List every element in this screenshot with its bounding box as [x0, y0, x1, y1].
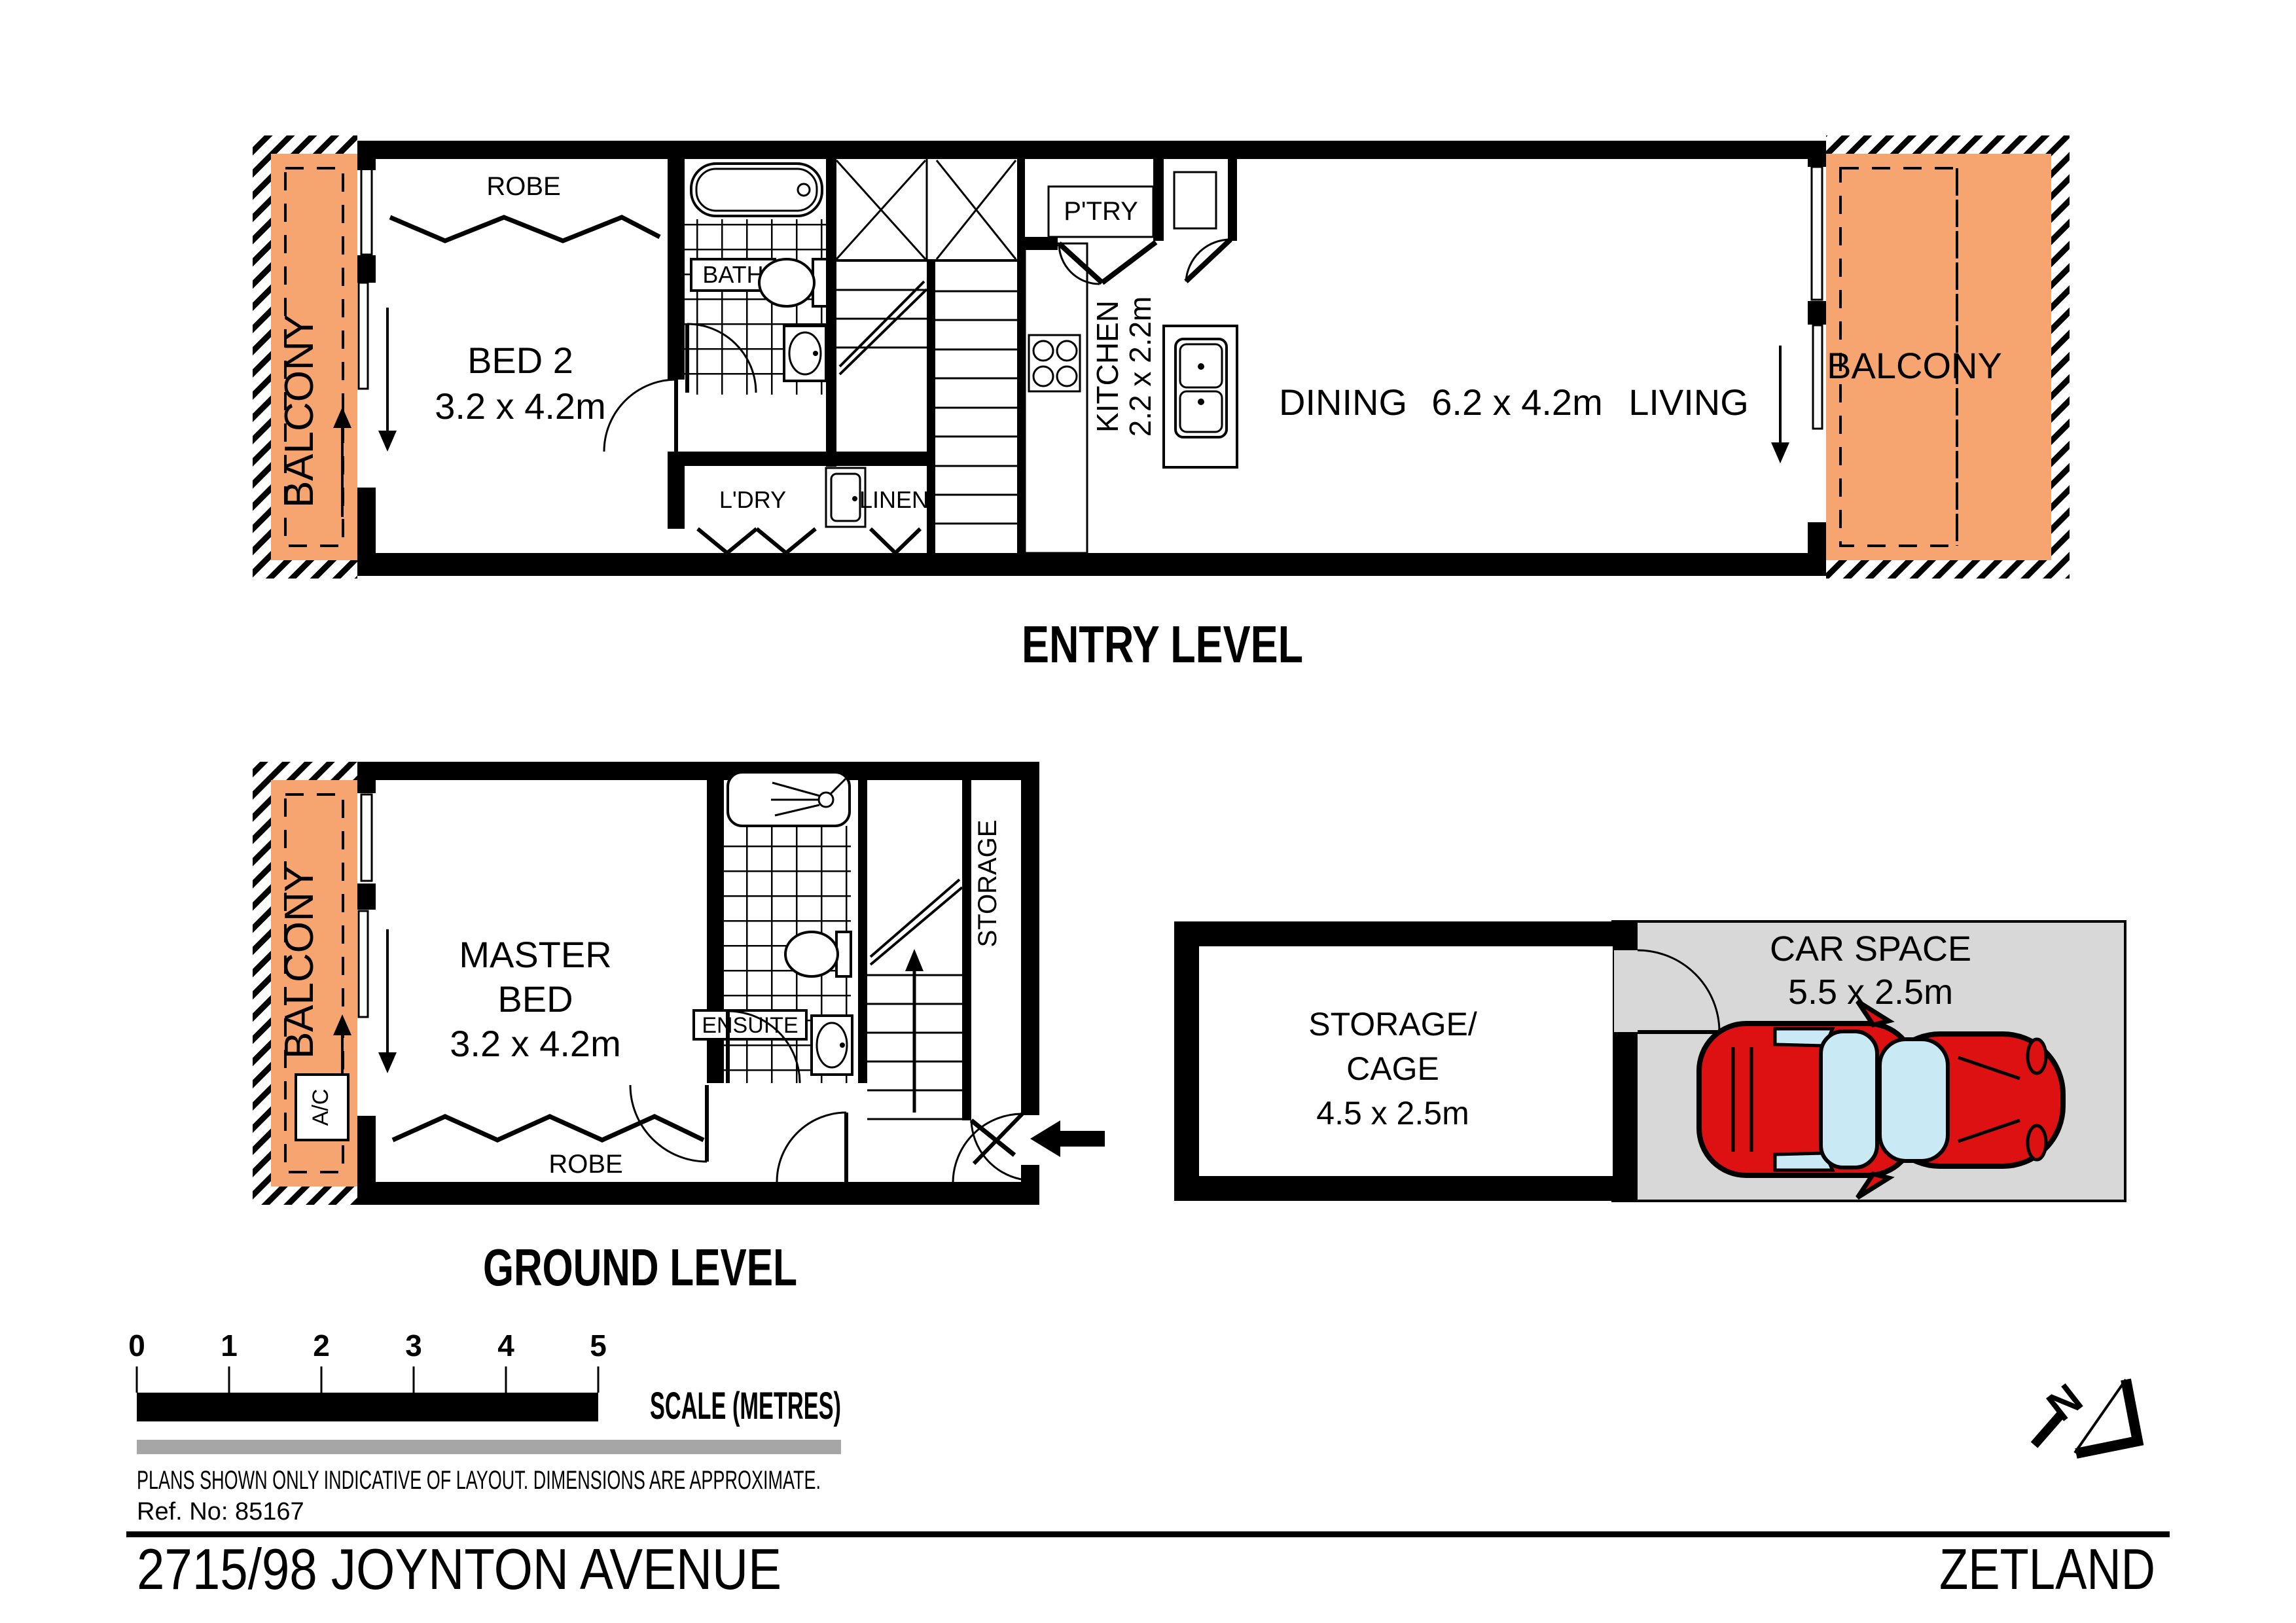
door-swing-arrow-head: [378, 1052, 397, 1073]
living-dimension: 6.2 x 4.2m: [1431, 382, 1602, 423]
wall: [685, 452, 927, 466]
wall: [357, 762, 376, 793]
suburb-text: ZETLAND: [1939, 1537, 2155, 1601]
scale-tick-label: 3: [405, 1329, 422, 1363]
stair-handrail: [840, 281, 924, 366]
stair-handrail: [870, 887, 962, 965]
living-label: LIVING: [1628, 382, 1749, 423]
wall: [357, 883, 376, 910]
bathroom: BATH: [685, 164, 829, 395]
kitchen-counter: [1025, 243, 1087, 553]
door-swing-arrow-head: [378, 431, 397, 452]
disclaimer-text: PLANS SHOWN ONLY INDICATIVE OF LAYOUT. D…: [137, 1466, 821, 1495]
kitchen-label: KITCHEN: [1090, 300, 1124, 433]
wall: [1808, 141, 1826, 167]
sliding-door-icon: [359, 911, 368, 1017]
robe-label: ROBE: [548, 1150, 622, 1179]
wall: [668, 159, 685, 380]
wall: [858, 762, 867, 1083]
bath-label: BATH: [702, 261, 763, 288]
kitchen-dimension: 2.2 x 2.2m: [1123, 296, 1157, 437]
scale-bar-rect: [137, 1393, 598, 1421]
dining-label: DINING: [1279, 382, 1407, 423]
storage-door-leaf: [971, 1120, 1014, 1155]
basin-counter-icon: [784, 326, 826, 381]
linen-label: LINEN: [859, 486, 929, 513]
basin-tap-dot: [840, 1043, 845, 1048]
window-icon: [1812, 167, 1822, 300]
cooktop-burner: [1057, 341, 1077, 361]
ground-stairs: [858, 762, 971, 1120]
entry-door-leaf: [974, 1114, 1022, 1164]
wall: [357, 141, 1826, 159]
scale-tick-label: 0: [128, 1329, 145, 1363]
master-dimension: 3.2 x 4.2m: [450, 1023, 620, 1064]
address-text: 2715/98 JOYNTON AVENUE: [137, 1537, 781, 1601]
stair-up-arrow-head: [905, 949, 924, 971]
toilet-icon: [759, 259, 814, 306]
north-arrow-icon: N: [2034, 1374, 2138, 1454]
wall: [357, 255, 376, 283]
window-icon: [361, 169, 372, 255]
entry-level-title: ENTRY LEVEL: [1022, 615, 1303, 673]
robe-zigzag-icon: [393, 1116, 704, 1140]
stair-handrail: [870, 880, 960, 957]
sink-drain-dot: [1198, 363, 1204, 370]
bed2-dimension: 3.2 x 4.2m: [435, 385, 605, 427]
scale-tick-label: 5: [590, 1329, 607, 1363]
bathtub-icon: [691, 164, 822, 216]
bifold-door-icon: [698, 529, 757, 553]
bed2-room: ROBE BED 2 3.2 x 4.2m: [390, 172, 660, 427]
storage-cage-dimension: 4.5 x 2.5m: [1316, 1095, 1469, 1132]
stair-handrail: [840, 289, 927, 374]
ensuite-label: ENSUITE: [702, 1013, 798, 1038]
wall: [1174, 921, 1638, 946]
balcony-hatch-border: [1826, 135, 2070, 154]
cooktop-burner: [1033, 341, 1053, 361]
scale-tick-label: 1: [221, 1329, 238, 1363]
storage-cage-label-line1: STORAGE/: [1308, 1006, 1477, 1043]
wall: [357, 488, 376, 553]
wall: [357, 141, 376, 170]
sink-drain-dot: [1198, 399, 1204, 405]
balcony-hatch-border: [2051, 135, 2070, 579]
north-arrow-thick-edge: [2076, 1380, 2138, 1454]
door-swing-arrow-head: [1771, 442, 1789, 463]
carspace-area: CAR SPACE 5.5 x 2.5m STORAGE/ CAGE 4.5 x…: [1174, 921, 2125, 1201]
pantry-door-leaf: [1059, 243, 1102, 283]
scale-tick-label: 2: [313, 1329, 330, 1363]
balcony-label: BALCONY: [277, 865, 322, 1059]
car-headlight: [2028, 1039, 2046, 1073]
wall: [1021, 1165, 1039, 1182]
toilet-icon: [785, 932, 838, 976]
scale-grey-bar: [137, 1440, 841, 1454]
car-rear-window: [1821, 1031, 1877, 1168]
floorplan-page: BALCONY ROBE BED 2 3.2 x 4.2m: [0, 0, 2296, 1623]
wall: [1808, 301, 1826, 325]
pantry-label: P'TRY: [1064, 197, 1138, 226]
bifold-door-icon: [870, 529, 920, 553]
ground-level-title: GROUND LEVEL: [483, 1238, 797, 1296]
wall: [357, 1116, 376, 1205]
laundry-label: L'DRY: [719, 486, 786, 513]
car-headlight: [2028, 1126, 2046, 1160]
cooktop-burner: [1057, 366, 1077, 386]
wall: [1153, 159, 1164, 241]
ground-level-plan: BALCONY A/C MASTER BED 3.2 x 4.2m ROBE: [253, 762, 1105, 1296]
balcony-hatch-border: [1826, 560, 2070, 579]
entry-left-balcony: BALCONY: [253, 135, 357, 579]
bed2-door-arc: [604, 380, 676, 452]
fridge-icon: [1174, 172, 1216, 228]
wall: [962, 762, 971, 1120]
carspace-label: CAR SPACE: [1770, 929, 1971, 969]
storage-cage-label-line2: CAGE: [1346, 1050, 1439, 1087]
hall-door-arc: [777, 1113, 846, 1182]
wall: [927, 260, 935, 553]
window-icon: [361, 794, 372, 881]
reference-number: Ref. No: 85167: [137, 1498, 304, 1525]
entry-level-plan: BALCONY ROBE BED 2 3.2 x 4.2m: [253, 135, 2070, 673]
car-windshield: [1880, 1039, 1948, 1161]
wall: [826, 159, 836, 467]
ground-balcony: BALCONY A/C: [253, 762, 357, 1205]
wall: [357, 762, 1039, 780]
wall: [1228, 159, 1237, 241]
cooktop-burner: [1033, 366, 1053, 386]
bifold-door-icon: [757, 529, 816, 553]
north-arrow-pointer: [2034, 1414, 2062, 1445]
balcony-label: BALCONY: [1827, 345, 2002, 386]
kitchen: P'TRY KITCHEN 2.2 x 2.2m: [1018, 159, 1237, 553]
wall: [668, 452, 685, 529]
wall: [1613, 1032, 1638, 1201]
sliding-door-icon: [1813, 325, 1822, 429]
master-label-line1: MASTER: [459, 934, 611, 975]
bed2-label: BED 2: [467, 340, 573, 381]
wall: [1174, 1176, 1638, 1201]
floorplan-drawing: BALCONY ROBE BED 2 3.2 x 4.2m: [0, 0, 2296, 1623]
footer: PLANS SHOWN ONLY INDICATIVE OF LAYOUT. D…: [126, 1466, 2170, 1601]
wall: [1613, 921, 1638, 950]
wall: [1808, 522, 1826, 553]
robe-label: ROBE: [486, 172, 560, 201]
laundry-linen-closets: L'DRY LINEN: [698, 468, 929, 553]
pantry-door-leaf: [1102, 242, 1156, 283]
entry-right-balcony: BALCONY: [1826, 135, 2070, 579]
scale-bar: 0 1 2 3 4 5 SCALE (METRES): [128, 1329, 841, 1454]
sliding-door-icon: [359, 283, 368, 389]
scale-tick-label: 4: [497, 1329, 514, 1363]
wall: [1174, 921, 1199, 1201]
wall: [357, 553, 1826, 576]
balcony-label: BALCONY: [277, 314, 322, 508]
robe-zigzag-icon: [390, 217, 660, 241]
ac-label: A/C: [308, 1089, 333, 1126]
wall: [1021, 762, 1039, 1115]
storage-label: STORAGE: [973, 820, 1002, 948]
scale-label: SCALE (METRES): [650, 1385, 841, 1427]
washing-machine-knob: [852, 496, 857, 501]
north-letter: N: [2038, 1374, 2091, 1430]
basin-tap-dot: [813, 351, 818, 356]
carspace-dimension: 5.5 x 2.5m: [1788, 972, 1953, 1012]
wall: [1018, 237, 1058, 250]
wall: [1017, 159, 1025, 553]
master-label-line2: BED: [497, 978, 573, 1020]
entry-arrow-icon: [1030, 1120, 1105, 1157]
wall: [357, 1182, 1039, 1205]
